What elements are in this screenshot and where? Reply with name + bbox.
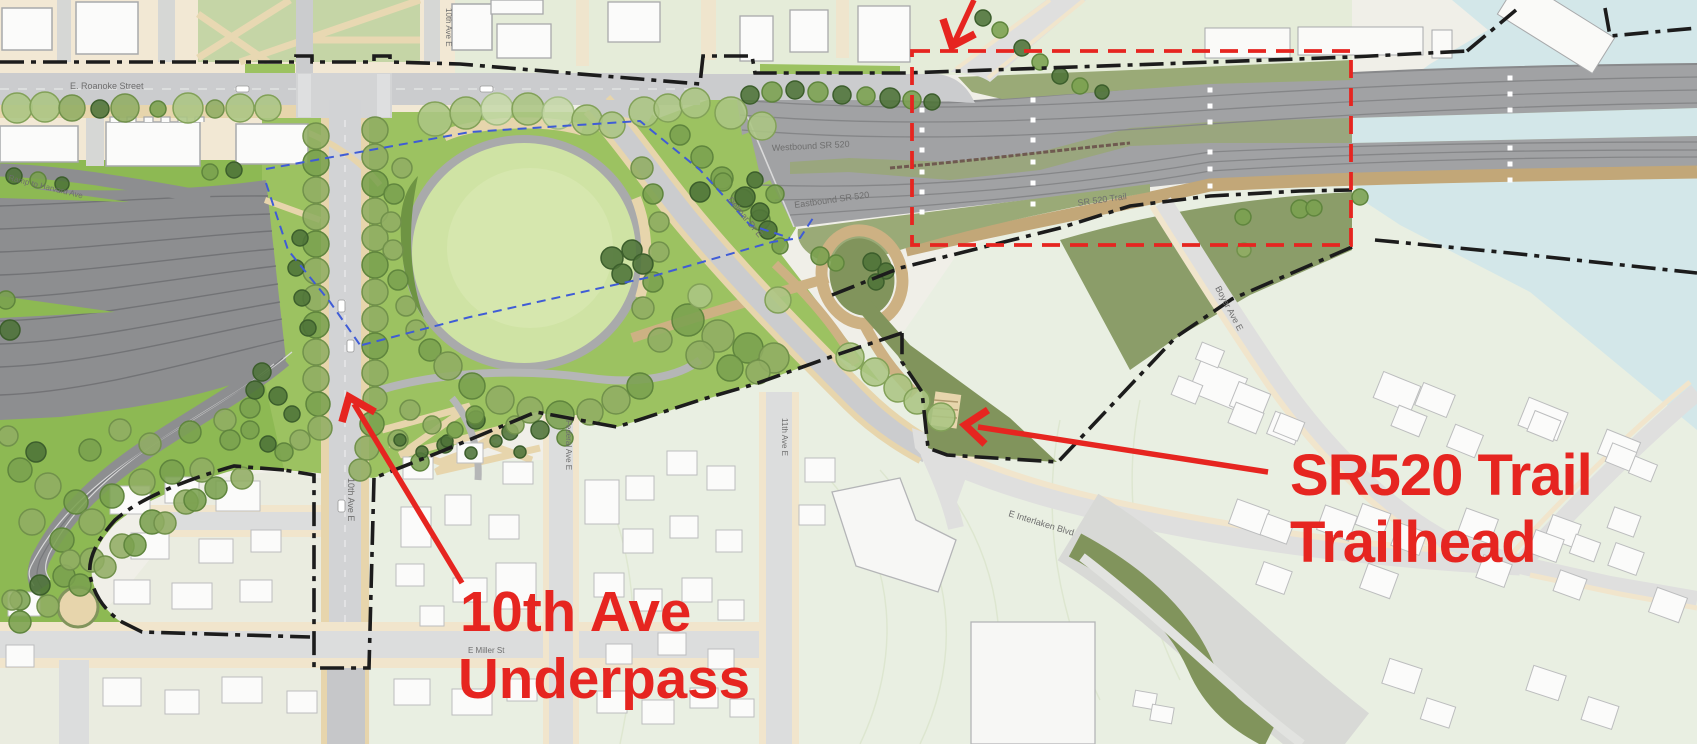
svg-text:Trailhead: Trailhead — [1290, 510, 1536, 575]
svg-text:10th Ave: 10th Ave — [460, 580, 691, 643]
svg-text:Underpass: Underpass — [458, 647, 750, 710]
svg-text:11th Ave E: 11th Ave E — [780, 418, 789, 456]
svg-text:10th Ave E: 10th Ave E — [346, 478, 356, 521]
svg-text:SR520 Trail: SR520 Trail — [1290, 443, 1592, 508]
svg-text:E. Roanoke Street: E. Roanoke Street — [70, 81, 144, 91]
svg-text:10th Ave E: 10th Ave E — [444, 8, 453, 47]
svg-text:Federal Ave E: Federal Ave E — [564, 420, 573, 470]
